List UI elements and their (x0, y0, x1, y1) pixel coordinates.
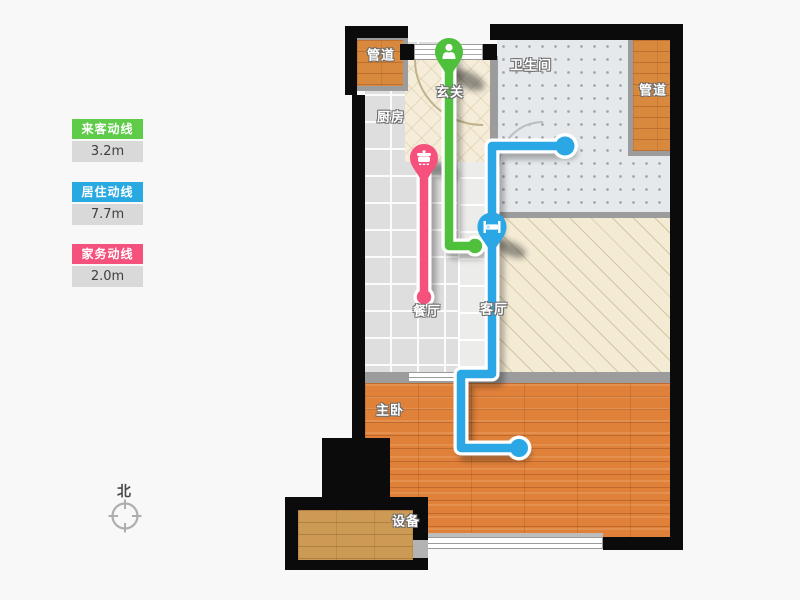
chore-route-pin[interactable] (410, 144, 438, 186)
legend-chore-route[interactable]: 家务动线 (72, 244, 143, 264)
compass-icon (108, 499, 142, 533)
room-label-bathroom: 卫生间 (510, 55, 552, 74)
legend-resident-route[interactable]: 居住动线 (72, 182, 143, 202)
room-label-living: 客厅 (480, 299, 508, 318)
resident-route-dot (510, 439, 528, 457)
legend-guest-route[interactable]: 来客动线 (72, 119, 143, 139)
room-label-entrance: 玄关 (436, 82, 464, 101)
room-label-duct-top-left: 管道 (367, 45, 395, 64)
room-label-duct-right: 管道 (639, 80, 667, 99)
legend-resident-value: 7.7m (72, 204, 143, 225)
room-label-dining: 餐厅 (413, 301, 441, 320)
room-label-kitchen: 厨房 (377, 107, 405, 126)
room-label-equipment: 设备 (392, 511, 420, 530)
room-label-bedroom: 主卧 (376, 400, 404, 419)
resident-route-casing (461, 146, 565, 448)
legend-chore-value: 2.0m (72, 266, 143, 287)
resident-route-line (461, 146, 565, 448)
guest-route-end (468, 239, 482, 253)
north-label: 北 (117, 481, 131, 501)
resident-route-dot (556, 137, 575, 156)
legend-guest-value: 3.2m (72, 141, 143, 162)
